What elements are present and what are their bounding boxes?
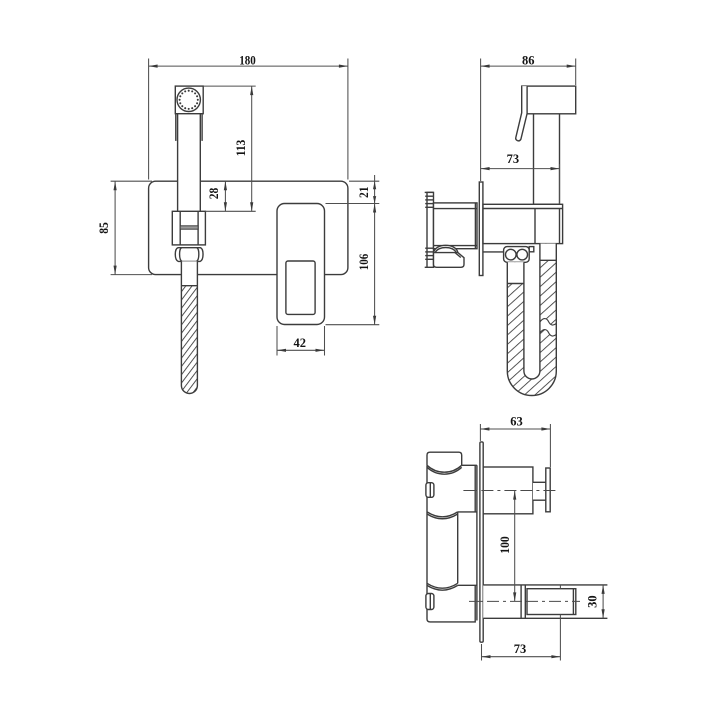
svg-text:21: 21 bbox=[357, 187, 371, 199]
svg-text:100: 100 bbox=[498, 536, 512, 554]
svg-text:106: 106 bbox=[357, 254, 371, 271]
svg-text:180: 180 bbox=[239, 54, 256, 68]
svg-text:28: 28 bbox=[207, 188, 221, 200]
svg-text:73: 73 bbox=[507, 152, 520, 166]
svg-text:86: 86 bbox=[522, 54, 535, 68]
svg-text:42: 42 bbox=[294, 336, 307, 350]
svg-text:113: 113 bbox=[234, 140, 248, 157]
svg-text:85: 85 bbox=[97, 222, 111, 234]
svg-text:63: 63 bbox=[510, 414, 523, 428]
svg-text:73: 73 bbox=[514, 642, 527, 656]
svg-text:30: 30 bbox=[586, 595, 600, 608]
